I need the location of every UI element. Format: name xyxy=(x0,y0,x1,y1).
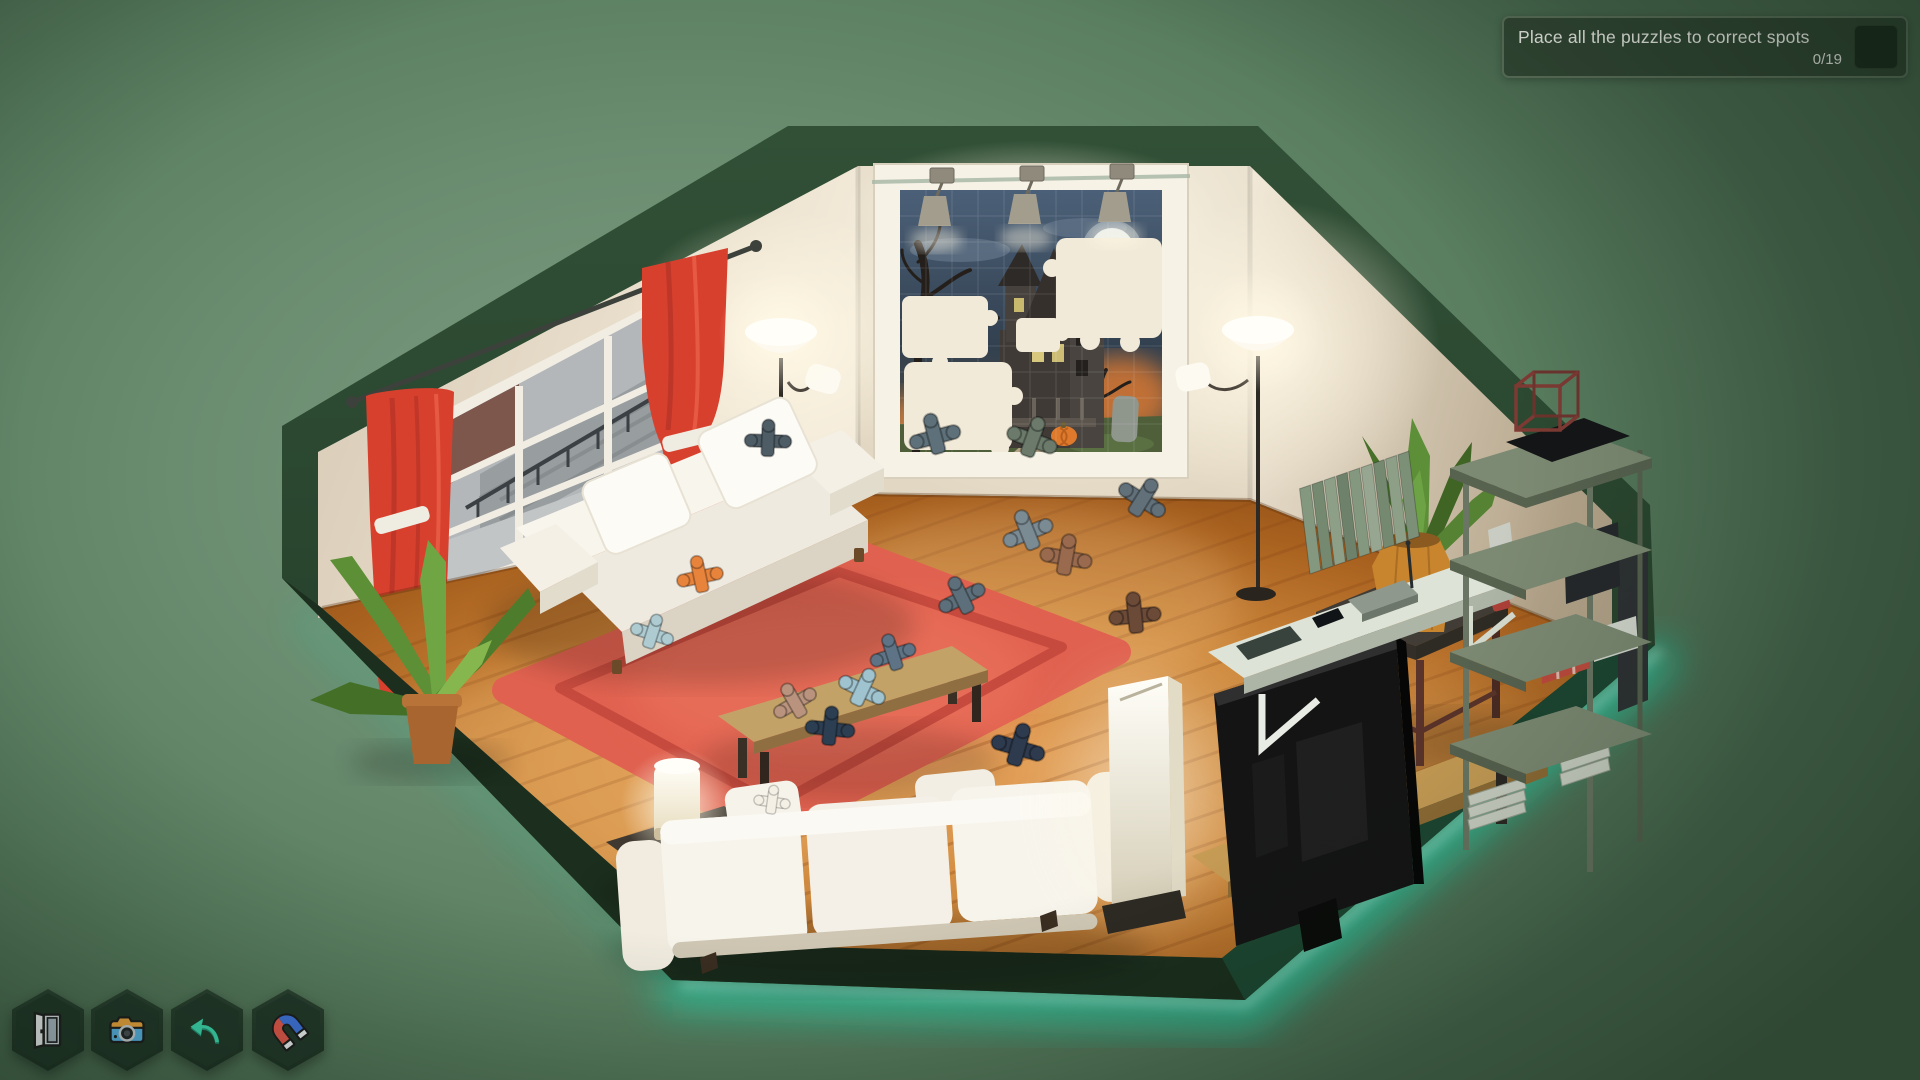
door-icon xyxy=(26,1008,70,1052)
photo-button[interactable] xyxy=(91,989,163,1071)
undo-icon xyxy=(185,1008,229,1052)
exit-button[interactable] xyxy=(12,989,84,1071)
undo-button[interactable] xyxy=(171,989,243,1071)
magnet-button[interactable] xyxy=(252,989,324,1071)
magnet-icon xyxy=(266,1008,310,1052)
objective-text: Place all the puzzles to correct spots 0… xyxy=(1518,27,1848,68)
camera-icon xyxy=(105,1008,149,1052)
game-screen: Place all the puzzles to correct spots 0… xyxy=(0,0,1920,1080)
objective-progress: 0/19 xyxy=(1518,51,1848,68)
objective-title: Place all the puzzles to correct spots xyxy=(1518,27,1848,48)
game-viewport[interactable] xyxy=(0,0,1920,1080)
objective-banner: Place all the puzzles to correct spots 0… xyxy=(1502,16,1908,78)
objective-checkbox xyxy=(1854,25,1898,69)
